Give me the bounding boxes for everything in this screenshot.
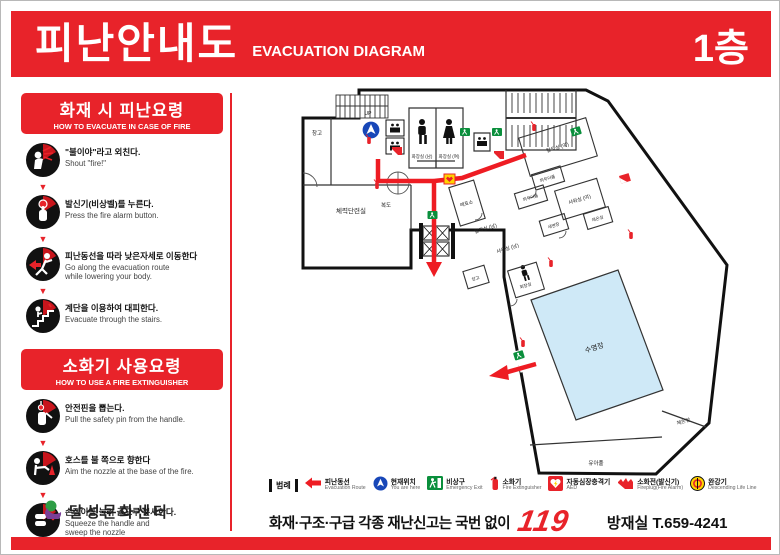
label-storage-wing: 창고	[471, 274, 480, 282]
red-divider	[230, 93, 232, 531]
current-location-marker	[362, 121, 380, 139]
building-outline	[303, 90, 727, 474]
step-text-en: Shout "fire!"	[65, 159, 140, 168]
current-location-icon	[373, 476, 388, 496]
step-text-en: Go along the evacuation route while lowe…	[65, 263, 197, 282]
evacuation-step-3: ▼ 피난동선을 따라 낮은자세로 이동한다Go along the evacua…	[21, 246, 223, 296]
step-text-en: Press the fire alarm button.	[65, 211, 159, 220]
sidebar: 화재 시 피난요령 HOW TO EVACUATE IN CASE OF FIR…	[21, 93, 223, 549]
floor-badge: 1층	[693, 17, 749, 72]
extinguisher-step-1: ▼ 안전핀을 뽑는다.Pull the safety pin from the …	[21, 398, 223, 448]
safety-pin-icon	[25, 398, 61, 439]
legend-en: Descending Life Line	[708, 486, 756, 492]
emergency-exit-icon	[427, 476, 443, 495]
control-room-phone: 방재실 T.659-4241	[607, 512, 728, 533]
legend-en: Evacuation Route	[325, 486, 366, 492]
aim-nozzle-icon	[25, 450, 61, 491]
page-title: 피난안내도	[35, 23, 238, 65]
extinguisher-title-en: HOW TO USE A FIRE EXTINGUISHER	[23, 378, 221, 387]
stairs-top-left	[336, 95, 388, 118]
step-text-ko: 안전핀을 뽑는다.	[65, 403, 185, 414]
legend: 범례 피난동선Evacuation Route 현재위치You are here…	[269, 475, 773, 496]
legend-item-fireplug: 소화전(발신기)Fireplug(Fire Alarm)	[617, 476, 683, 495]
label-kids-pool: 유아풀	[588, 459, 603, 467]
logo-mark-icon	[43, 499, 63, 524]
stairs-icon	[25, 298, 61, 339]
evacuation-diagram-sign: 피난안내도 EVACUATION DIAGRAM 1층 화재 시 피난요령 HO…	[0, 0, 780, 555]
label-fitness: 체력단련실	[336, 206, 366, 215]
extinguisher-step-2: ▼ 호스를 불 쪽으로 향한다Aim the nozzle at the bas…	[21, 450, 223, 500]
evacuation-step-4: 계단을 이용하여 대피한다.Evacuate through the stair…	[21, 298, 223, 339]
label-corridor: 복도	[381, 202, 391, 209]
step-text-en: Evacuate through the stairs.	[65, 315, 162, 324]
extinguisher-title-ko: 소화기 사용요령	[23, 353, 221, 377]
press-alarm-icon	[25, 194, 61, 235]
step-text-en: Pull the safety pin from the handle.	[65, 415, 185, 424]
step-text-en: Aim the nozzle at the base of the fire.	[65, 467, 194, 476]
step-connector-arrow: ▼	[39, 439, 48, 448]
evacuation-steps: ▼ "불이야"라고 외친다.Shout "fire!" ▼ 발신기(비상벨)를 …	[21, 142, 223, 339]
header: 피난안내도 EVACUATION DIAGRAM 1층	[11, 11, 771, 77]
emergency-report-text: 화재·구조·구급 각종 재난신고는 국번 없이	[269, 512, 510, 533]
emergency-number: 119	[515, 507, 571, 537]
legend-en: You are here	[391, 486, 421, 492]
bottom-red-bar	[11, 537, 771, 550]
floor-plan: 창고 UP 체력단련실 복도 화장실 (남) 화장실 (여) 매표소 탈의실 (…	[236, 85, 771, 477]
evacuation-route-icon	[304, 476, 322, 495]
step-text-ko: 피난동선을 따라 낮은자세로 이동한다	[65, 251, 197, 262]
page-subtitle: EVACUATION DIAGRAM	[252, 43, 425, 60]
descending-life-line-icon	[690, 476, 705, 496]
fire-extinguisher-icon	[490, 475, 500, 496]
label-stairs-up: UP	[365, 111, 373, 117]
step-text-ko: 발신기(비상벨)를 누른다.	[65, 199, 159, 210]
route-arrow-left	[489, 365, 509, 380]
evacuation-step-2: ▼ 발신기(비상벨)를 누른다.Press the fire alarm but…	[21, 194, 223, 244]
legend-en: AED	[566, 486, 610, 492]
step-text-ko: "불이야"라고 외친다.	[65, 147, 140, 158]
evacuation-step-1: ▼ "불이야"라고 외친다.Shout "fire!"	[21, 142, 223, 192]
crouch-run-icon	[25, 246, 61, 287]
label-toilet-w: 화장실 (여)	[439, 153, 460, 160]
label-storage-left: 창고	[312, 129, 322, 137]
evacuation-section-header: 화재 시 피난요령 HOW TO EVACUATE IN CASE OF FIR…	[21, 93, 223, 134]
legend-item-aed: 자동심장충격기AED	[548, 476, 610, 496]
legend-item-fire-extinguisher: 소화기Fire Extinguisher	[490, 475, 542, 496]
legend-en: Fireplug(Fire Alarm)	[637, 486, 683, 492]
extinguisher-steps: ▼ 안전핀을 뽑는다.Pull the safety pin from the …	[21, 398, 223, 547]
organization-logo: 달성문화센터	[43, 499, 170, 524]
legend-item-descending-life-line: 완강기Descending Life Line	[690, 476, 756, 496]
logo-text: 달성문화센터	[69, 501, 170, 522]
footer: 화재·구조·구급 각종 재난신고는 국번 없이 119 방재실 T.659-42…	[269, 507, 769, 537]
fireplug-icon	[617, 476, 634, 495]
legend-item-emergency-exit: 비상구Emergency Exit	[427, 476, 482, 495]
evacuation-title-ko: 화재 시 피난요령	[23, 97, 221, 121]
legend-label: 범례	[269, 479, 298, 492]
legend-en: Emergency Exit	[446, 486, 482, 492]
legend-item-evacuation-route: 피난동선Evacuation Route	[304, 476, 366, 495]
step-text-ko: 호스를 불 쪽으로 향한다	[65, 455, 194, 466]
evacuation-title-en: HOW TO EVACUATE IN CASE OF FIRE	[23, 122, 221, 131]
label-toilet-m: 화장실 (남)	[412, 153, 433, 160]
aed-icon	[548, 476, 563, 496]
step-connector-arrow: ▼	[39, 183, 48, 192]
aed-marker	[444, 174, 455, 184]
step-connector-arrow: ▼	[39, 235, 48, 244]
legend-item-current-location: 현재위치You are here	[373, 476, 421, 496]
extinguisher-section-header: 소화기 사용요령 HOW TO USE A FIRE EXTINGUISHER	[21, 349, 223, 390]
shout-fire-icon	[25, 142, 61, 183]
legend-en: Fire Extinguisher	[503, 486, 542, 492]
step-connector-arrow: ▼	[39, 287, 48, 296]
route-arrow-down	[426, 262, 442, 277]
step-text-ko: 계단을 이용하여 대피한다.	[65, 303, 162, 314]
